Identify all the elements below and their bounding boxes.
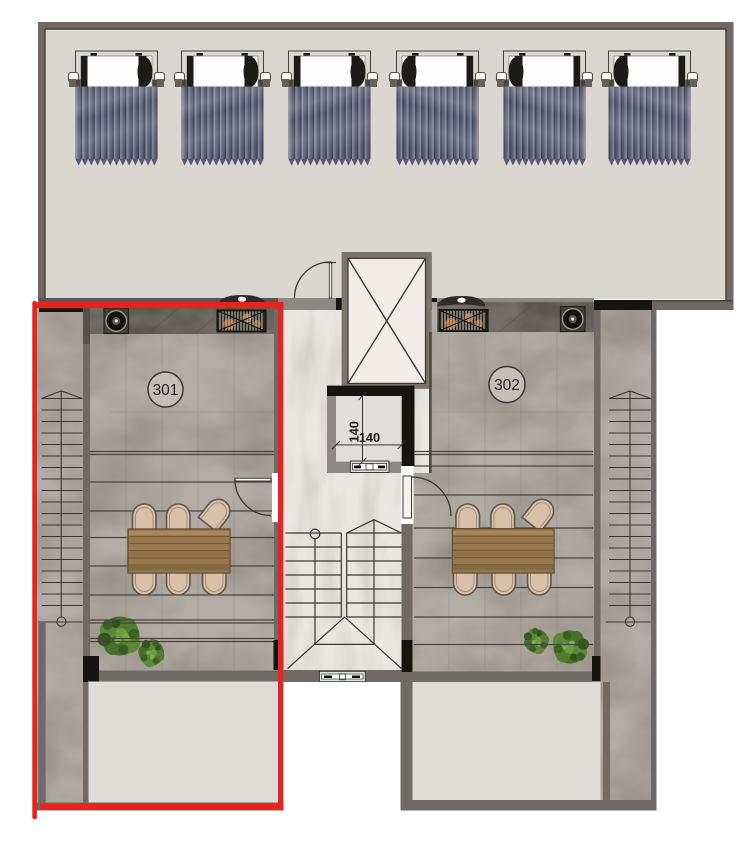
- svg-text:301: 301: [153, 382, 179, 399]
- svg-text:140: 140: [359, 430, 380, 445]
- svg-text:302: 302: [494, 377, 520, 394]
